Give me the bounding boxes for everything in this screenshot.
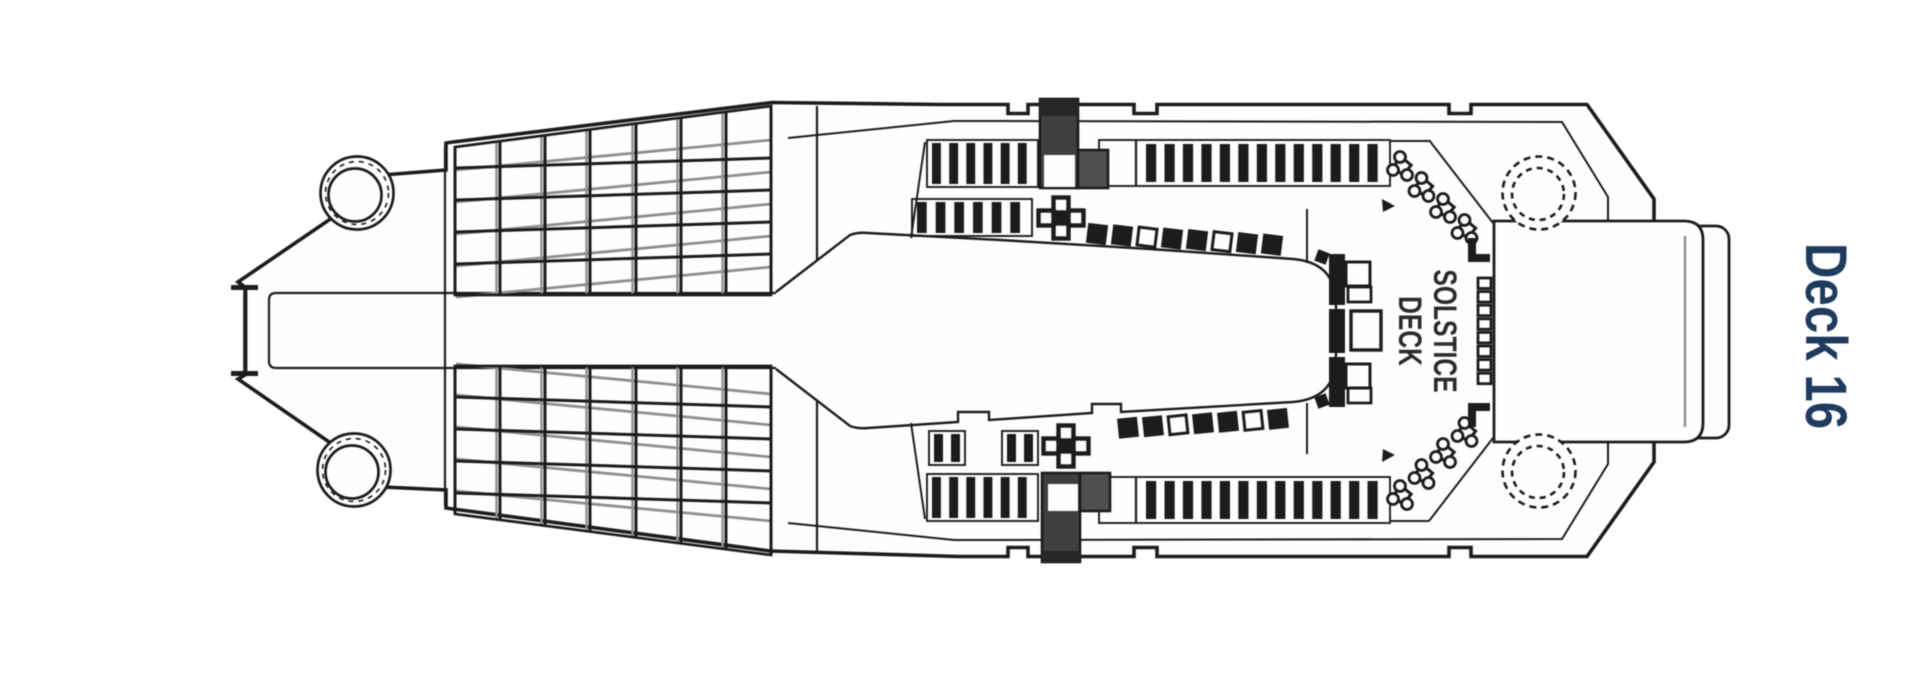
svg-text:Deck 16: Deck 16 [1793,243,1858,429]
svg-text:DECK: DECK [1391,296,1427,366]
svg-text:SOLSTICE: SOLSTICE [1426,269,1462,392]
